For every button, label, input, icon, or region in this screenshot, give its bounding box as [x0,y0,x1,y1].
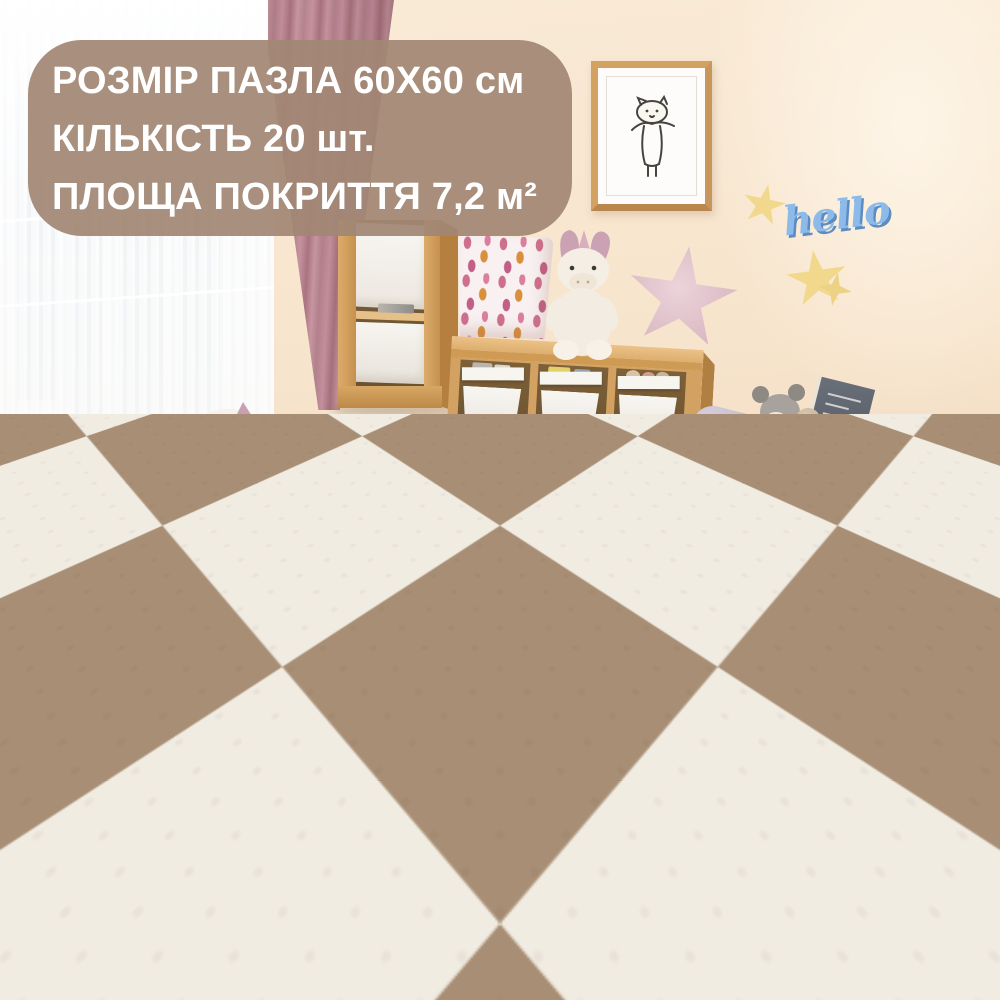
storage-bin [456,385,525,439]
mouse-ear [788,384,805,401]
badge-line-area: ПЛОЩА ПОКРИТТЯ 7,2 м² [52,168,556,226]
bench-section [456,360,531,448]
shelf-toys [378,303,414,313]
badge-line-count: КІЛЬКІСТЬ 20 шт. [52,110,556,168]
bench-section [534,364,609,452]
storage-bin [352,322,428,385]
shelf-upright [424,220,440,406]
picture-frame [591,61,712,211]
storage-tray [618,376,680,389]
cat-doodle-icon [624,94,680,182]
unicorn-plush [532,226,632,362]
storage-tray [540,372,602,385]
bench-frame [446,357,703,463]
mouse-ear [752,386,769,403]
tall-storage-shelf [338,220,458,412]
bench-section [612,368,687,456]
storage-bin [534,390,603,444]
rocking-horse [165,390,400,580]
shelf-upright [338,220,356,406]
knot-ball-toy [296,656,372,740]
product-photo-scene: hello [0,0,1000,1000]
badge-line-size: РОЗМІР ПАЗЛА 60Х60 см [52,52,556,110]
storage-tray [462,367,524,380]
info-badge: РОЗМІР ПАЗЛА 60Х60 см КІЛЬКІСТЬ 20 шт. П… [28,40,572,236]
toy-basket: TOYS [752,382,880,538]
storage-bin [612,394,681,448]
